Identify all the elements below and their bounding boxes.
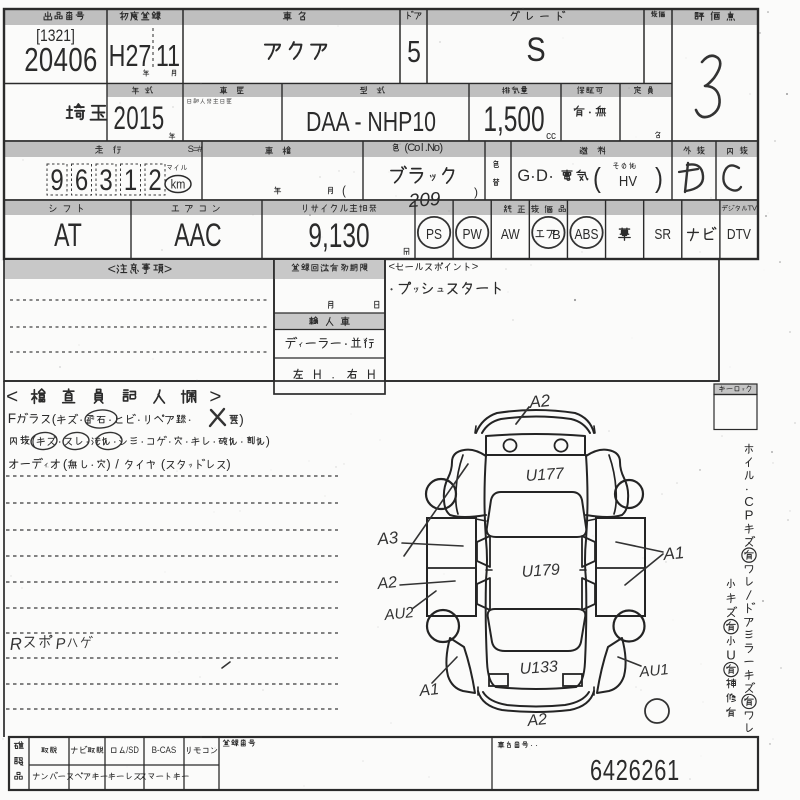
svg-text:3: 3 bbox=[99, 162, 112, 196]
svg-text:A2: A2 bbox=[527, 391, 551, 412]
svg-text:l: l bbox=[421, 142, 424, 154]
svg-text:): ) bbox=[266, 434, 270, 448]
svg-text:PW: PW bbox=[463, 226, 482, 243]
svg-text:1: 1 bbox=[124, 162, 137, 196]
svg-text:/SD: /SD bbox=[126, 744, 139, 755]
svg-text:5: 5 bbox=[407, 34, 421, 68]
svg-text:AT: AT bbox=[54, 217, 82, 253]
svg-text:B-CAS: B-CAS bbox=[152, 744, 177, 755]
svg-text:2: 2 bbox=[148, 162, 161, 196]
svg-text:AU1: AU1 bbox=[638, 661, 670, 681]
svg-text:6426261: 6426261 bbox=[590, 755, 680, 787]
svg-text:A1: A1 bbox=[661, 543, 685, 564]
svg-text:cc: cc bbox=[546, 131, 556, 143]
svg-text:(: ( bbox=[63, 457, 68, 472]
svg-text:F: F bbox=[8, 411, 16, 426]
svg-text:G: G bbox=[517, 167, 530, 185]
svg-text:P: P bbox=[745, 507, 754, 522]
svg-text:H: H bbox=[313, 366, 322, 382]
svg-text:1,500: 1,500 bbox=[483, 101, 544, 139]
svg-text:U: U bbox=[726, 647, 736, 662]
svg-text:>: > bbox=[164, 261, 172, 277]
svg-text:PS: PS bbox=[426, 226, 442, 243]
svg-text:H: H bbox=[367, 366, 376, 382]
svg-text:): ) bbox=[655, 161, 663, 193]
svg-text:km: km bbox=[171, 177, 186, 192]
svg-text:<: < bbox=[389, 261, 396, 273]
svg-text:2015: 2015 bbox=[113, 100, 164, 136]
svg-text:ABS: ABS bbox=[574, 226, 598, 243]
svg-text:P: P bbox=[55, 635, 66, 653]
svg-text:HV: HV bbox=[619, 173, 638, 189]
svg-text:V: V bbox=[752, 204, 758, 213]
svg-text:DAA - NHP10: DAA - NHP10 bbox=[306, 106, 436, 138]
svg-text:(: ( bbox=[593, 161, 601, 193]
svg-text:A3: A3 bbox=[375, 528, 399, 549]
svg-text:D: D bbox=[536, 167, 548, 185]
svg-text:): ) bbox=[474, 185, 478, 199]
svg-text:<: < bbox=[108, 261, 116, 277]
svg-text:A1: A1 bbox=[418, 681, 440, 700]
svg-text:(: ( bbox=[161, 457, 166, 472]
svg-text:A2: A2 bbox=[526, 711, 548, 730]
svg-text:): ) bbox=[226, 457, 230, 472]
svg-text:AAC: AAC bbox=[174, 217, 221, 253]
svg-text:o: o bbox=[414, 142, 420, 154]
svg-text:AU2: AU2 bbox=[383, 604, 415, 624]
svg-text:9,130: 9,130 bbox=[308, 217, 369, 255]
svg-text:AW: AW bbox=[501, 226, 520, 243]
svg-text:(: ( bbox=[52, 412, 57, 427]
svg-text:DTV: DTV bbox=[727, 226, 751, 243]
svg-text:6: 6 bbox=[75, 162, 88, 196]
svg-text:11: 11 bbox=[156, 38, 180, 73]
svg-text:S: S bbox=[526, 30, 545, 69]
svg-text:A2: A2 bbox=[376, 574, 398, 593]
svg-text:#: # bbox=[197, 143, 203, 154]
svg-text:B: B bbox=[552, 227, 561, 242]
svg-text:U133: U133 bbox=[519, 658, 558, 678]
svg-text:9: 9 bbox=[50, 162, 63, 196]
svg-text:): ) bbox=[106, 457, 110, 472]
svg-text:>: > bbox=[472, 261, 479, 273]
svg-text:<: < bbox=[6, 385, 18, 408]
svg-text:): ) bbox=[239, 412, 244, 427]
svg-text:R: R bbox=[9, 634, 22, 654]
svg-text:SR: SR bbox=[654, 226, 671, 243]
svg-text:20406: 20406 bbox=[24, 42, 97, 79]
svg-text:U179: U179 bbox=[521, 561, 560, 581]
svg-text:H27: H27 bbox=[109, 38, 152, 73]
svg-text:209: 209 bbox=[407, 189, 442, 212]
svg-text:/: / bbox=[115, 457, 119, 472]
svg-text:): ) bbox=[439, 142, 443, 154]
svg-text:>: > bbox=[209, 385, 221, 408]
svg-text:U177: U177 bbox=[525, 465, 565, 485]
